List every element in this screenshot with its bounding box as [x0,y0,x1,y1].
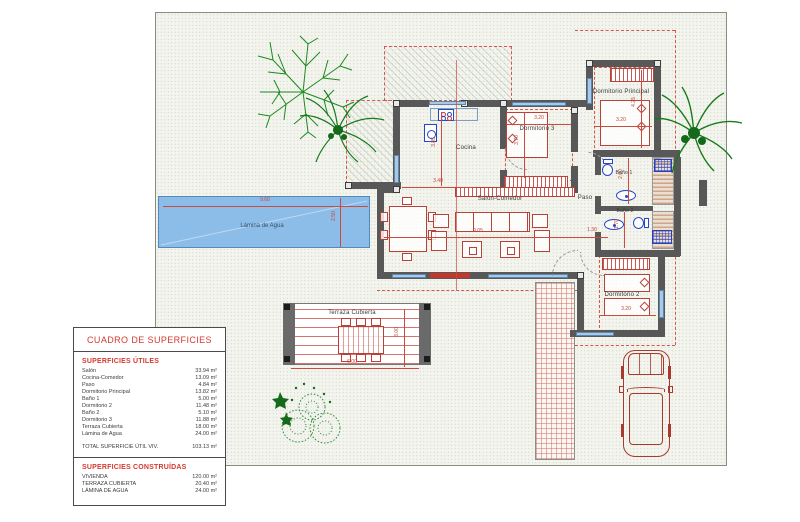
terrace-corner-post [424,356,430,362]
window [576,332,614,336]
sofa [455,212,530,232]
dimension-label-pool-h: 2.50 [331,211,337,221]
wall-stub [699,180,707,206]
wall-pillar [393,186,400,193]
chair [371,318,381,326]
dimension-line [163,206,368,207]
dimension-label-dorm2-w: 3.20 [621,306,631,312]
window [392,274,426,278]
wall [577,279,584,337]
chair [380,212,388,222]
dimension-label-dorm3-w: 3.20 [534,115,544,121]
dimension-label-salon-w: 9.05 [473,228,483,234]
room-label-bano2: Baño 2 [616,208,633,214]
chair [341,318,351,326]
table-row: Baño 15.00 m² [74,396,225,403]
roof-overhang-dash [575,30,675,31]
armchair [433,214,449,228]
armchair [431,231,447,251]
wall-pillar [571,107,578,114]
sink-icon [616,190,636,201]
porch-hatch [384,46,512,101]
table-total-row: TOTAL SUPERFICIE ÚTIL VIV.103.13 m² [74,443,225,451]
table-row: Salón33.94 m² [74,368,225,375]
divider [74,351,225,352]
armchair [532,214,548,228]
dimension-label-terraza-h: 3.00 [394,327,400,337]
wall [595,250,680,257]
terrace-corner-post [284,304,290,310]
dimension-label-cocina-w: 3.40 [433,178,443,184]
dimension-line [404,309,405,367]
wall-pillar [586,60,593,67]
dimension-line [291,368,419,369]
dimension-line [628,158,629,204]
chair [356,318,366,326]
table-row: Cocina-Comedor13.09 m² [74,375,225,382]
wall [586,60,661,67]
dimension-line [624,212,625,248]
terrace-corner-post [284,356,290,362]
wall-pillar [577,272,584,279]
coffee-table [462,241,482,258]
table-row: LÁMINA DE AGUA24.00 m² [74,488,225,495]
bush-icon [268,378,350,450]
chair [402,197,412,205]
surfaces-table: CUADRO DE SUPERFICIES SUPERFICIES ÚTILES… [73,327,226,506]
dining-table [389,206,427,252]
chair [371,354,381,362]
axis-line [456,60,457,290]
dimension-line [384,237,578,238]
dimension-line [441,112,442,186]
sliding-door [430,273,470,278]
table-row: Dormitorio 311.88 m² [74,417,225,424]
dimension-line [578,237,608,238]
wardrobe [504,176,568,188]
terrace-table [338,326,384,354]
construidas-heading: SUPERFICIES CONSTRUÍDAS [82,464,217,471]
roof-overhang-dash [575,345,675,346]
dimension-label-paso-w: 1.30 [587,227,597,233]
table-row: Lámina de Agua24.00 m² [74,431,225,438]
toilet-icon [644,218,649,228]
wall [595,196,601,214]
dimension-line [641,70,642,148]
table-row: Paso4.84 m² [74,382,225,389]
surfaces-table-title: CUADRO DE SUPERFICIES [74,335,225,345]
dimension-line [600,315,656,316]
dimension-label-dormp-w: 3.20 [616,117,626,123]
window [429,101,466,105]
chair [402,253,412,261]
toilet-icon [633,217,644,229]
window [659,290,664,318]
window [587,78,592,104]
palm-icon [298,88,386,166]
table-row: Dormitorio Principal13.82 m² [74,389,225,396]
toilet-icon [602,164,613,176]
pool-diagonal [159,197,369,247]
wardrobe [602,258,650,270]
bed-principal [600,100,650,146]
dimension-label-dorm3-h: 3.70 [514,135,520,145]
chair [380,230,388,240]
utiles-heading: SUPERFICIES ÚTILES [82,358,217,365]
wall-pillar [654,60,661,67]
room-label-terraza: Terraza Cubierta [328,310,376,316]
dimension-line [524,112,525,178]
table-row: Dormitorio 211.48 m² [74,403,225,410]
dimension-label-pool-w: 9.60 [260,197,270,203]
window [394,155,399,183]
wall-pillar [500,100,507,107]
wardrobe [610,68,654,82]
dimension-label-terraza-w: 6.00 [347,359,357,365]
room-label-paso: Paso [578,195,592,201]
pool [158,196,370,248]
room-label-bano1: Baño 1 [615,170,632,176]
wall-pillar [345,182,352,189]
room-label-lamina: Lámina de Agua [240,223,283,229]
dimension-label-bano2-h: 1.70 [614,219,620,229]
dimension-line [594,126,652,127]
table-row: TERRAZA CUBIERTA20.40 m² [74,481,225,488]
terrace-corner-post [424,304,430,310]
room-label-salon: Salón-Comedor [478,196,523,202]
dimension-line [340,198,341,247]
dimension-line [507,124,571,125]
room-label-dorm2: Dormitorio 2 [604,292,639,298]
room-label-dorm3: Dormitorio 3 [519,126,554,132]
coffee-table [500,241,520,258]
wall-pillar [393,100,400,107]
room-label-dormp: Dormitorio Principal [593,89,649,95]
dimension-label-dormp-h: 4.25 [631,97,637,107]
shower-icon [652,230,672,244]
table-row: VIVIENDA120.00 m² [74,474,225,481]
chair [356,354,366,362]
bed-dorm2 [604,274,650,292]
armchair [534,230,550,252]
room-label-cocina: Cocina [456,145,476,151]
floor-plan-drawing: Lámina de Agua 9.60 2.50 [0,0,800,522]
paved-walkway [535,282,575,460]
dimension-label-cocina-h: 3.85 [431,137,437,147]
palm-icon [652,85,744,183]
dimension-line [402,187,474,188]
table-row: Terraza Cubierta18.00 m² [74,424,225,431]
table-row: Baño 25.10 m² [74,410,225,417]
window [512,102,566,106]
car-icon [623,350,670,457]
divider [74,457,225,458]
